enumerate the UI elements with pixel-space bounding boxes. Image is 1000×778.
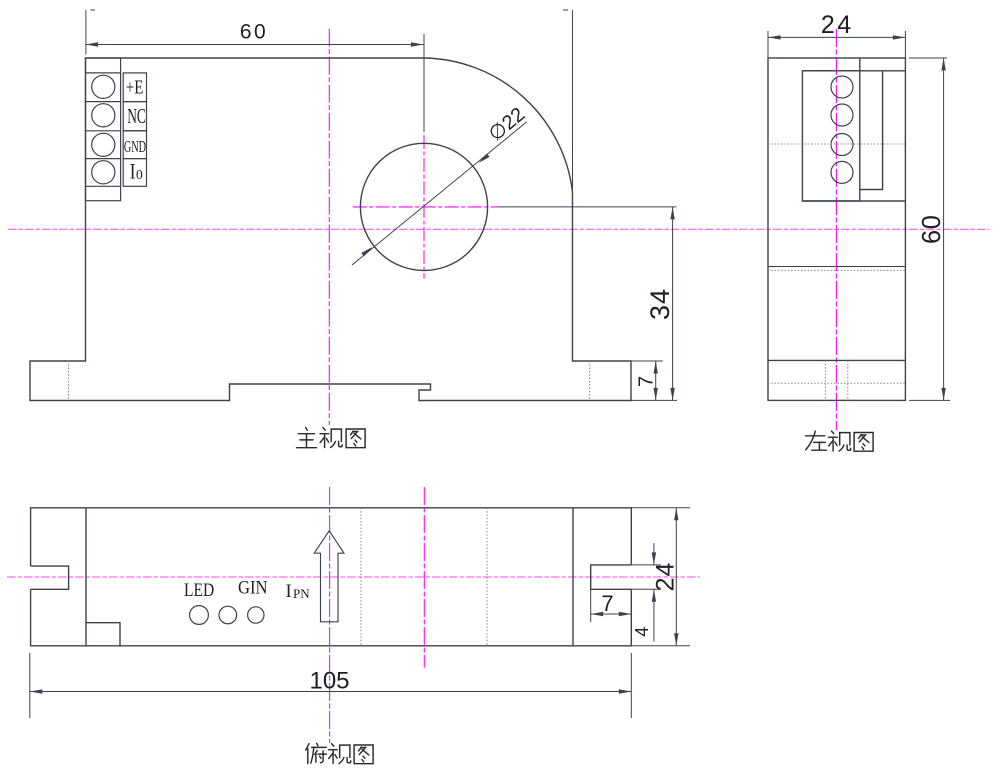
svg-text:I: I xyxy=(286,582,292,602)
svg-text:PN: PN xyxy=(293,586,310,601)
svg-text:60: 60 xyxy=(918,215,946,244)
svg-text:I: I xyxy=(130,159,136,184)
svg-text:7: 7 xyxy=(635,376,657,387)
svg-text:GND: GND xyxy=(124,137,146,155)
svg-text:105: 105 xyxy=(309,668,349,695)
svg-text:4: 4 xyxy=(632,627,652,637)
svg-text:24: 24 xyxy=(652,562,680,592)
svg-text:60: 60 xyxy=(240,20,268,43)
svg-text:24: 24 xyxy=(821,11,854,39)
svg-text:LED: LED xyxy=(184,580,214,601)
svg-text:GIN: GIN xyxy=(238,577,268,598)
svg-text:∅22: ∅22 xyxy=(485,103,530,145)
svg-text:0: 0 xyxy=(136,167,143,182)
svg-text:34: 34 xyxy=(645,288,675,320)
svg-text:7: 7 xyxy=(601,591,613,616)
svg-text:+E: +E xyxy=(126,75,144,98)
svg-text:NC: NC xyxy=(127,104,146,128)
